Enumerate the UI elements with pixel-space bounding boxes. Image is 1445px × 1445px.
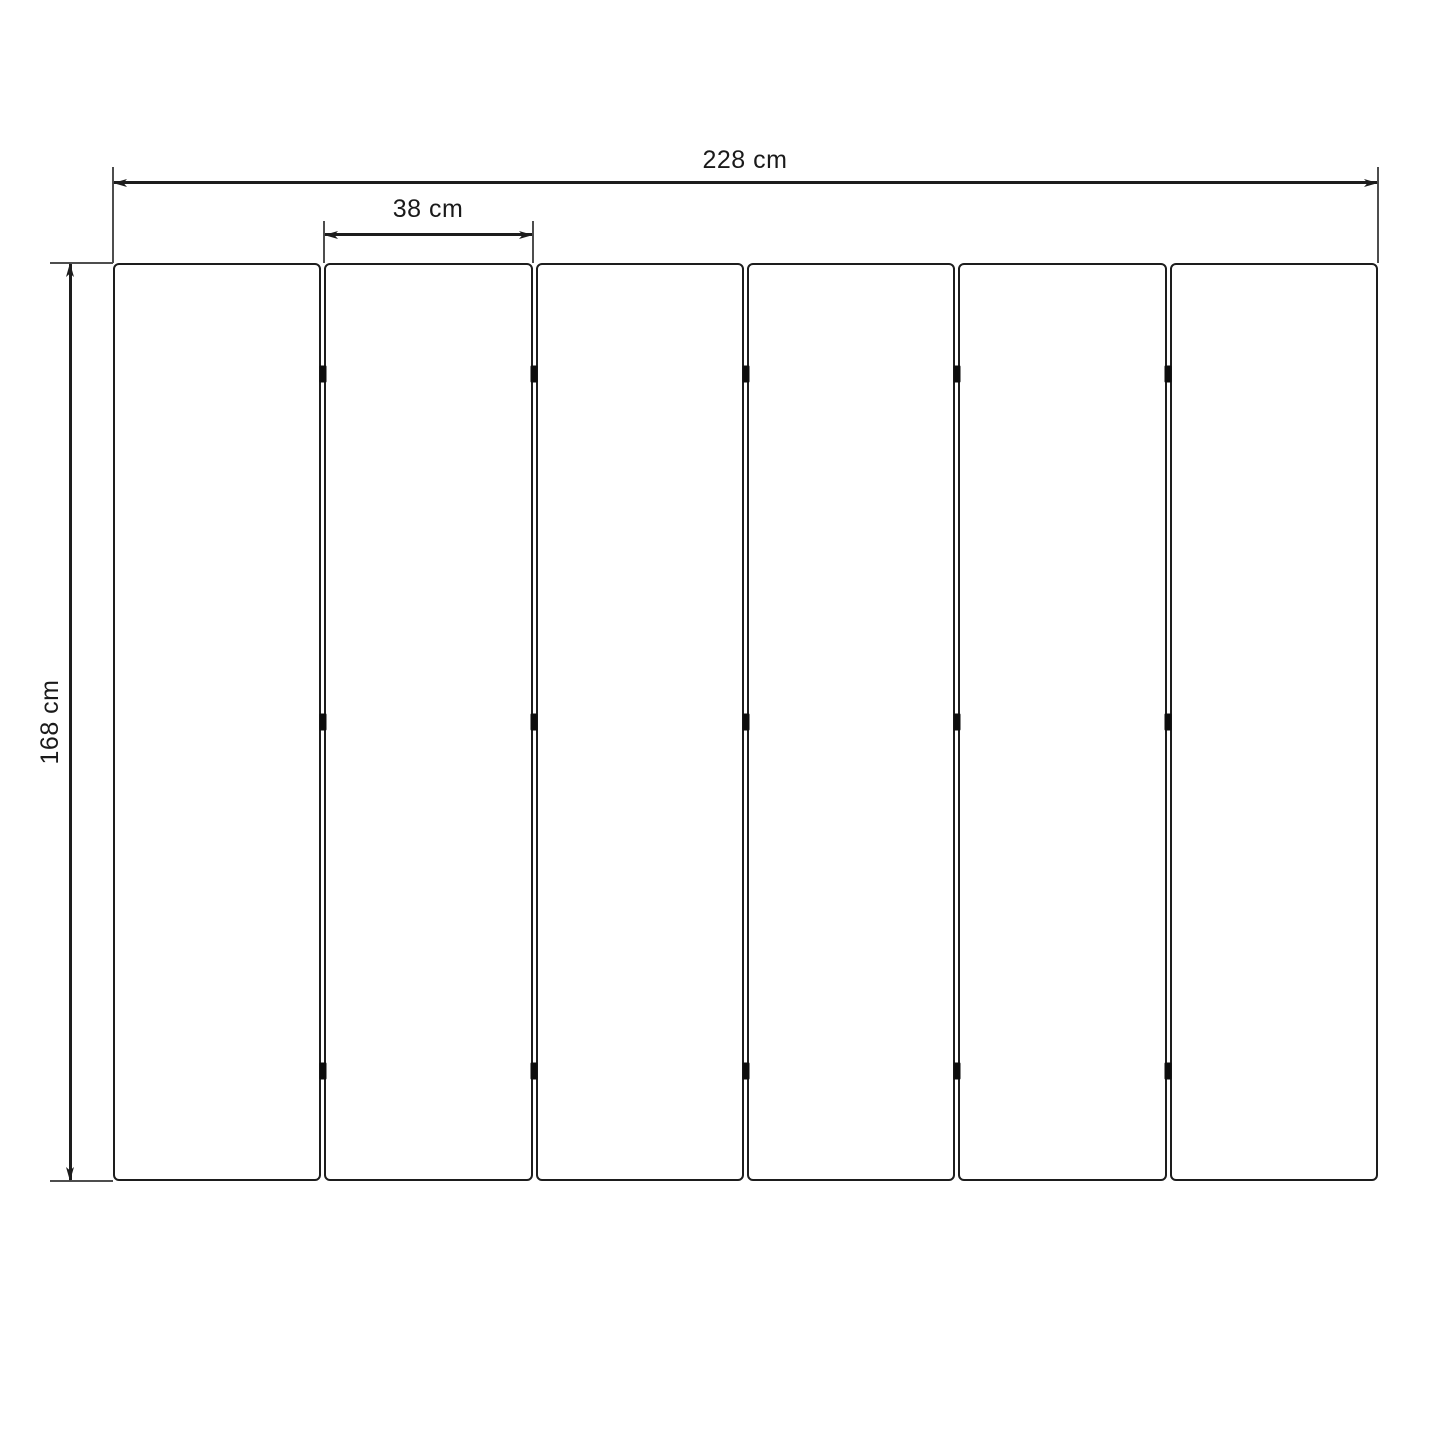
dimension-line-height bbox=[69, 263, 72, 1181]
hinge bbox=[742, 1063, 749, 1080]
hinge bbox=[953, 714, 960, 731]
hinge bbox=[531, 366, 538, 383]
arrowhead-left-icon bbox=[113, 178, 127, 188]
arrowhead-up-icon bbox=[65, 263, 75, 277]
arrowhead-down-icon bbox=[65, 1167, 75, 1181]
hinge bbox=[742, 714, 749, 731]
panel bbox=[324, 263, 532, 1181]
extension-line bbox=[532, 221, 533, 263]
hinge bbox=[1165, 714, 1172, 731]
hinge bbox=[531, 714, 538, 731]
hinge bbox=[319, 1063, 326, 1080]
hinge bbox=[319, 714, 326, 731]
dimension-label-total-width: 228 cm bbox=[595, 146, 895, 174]
hinge bbox=[953, 1063, 960, 1080]
panel bbox=[958, 263, 1166, 1181]
hinge bbox=[742, 366, 749, 383]
arrowhead-right-icon bbox=[519, 230, 533, 240]
dimension-label-panel-width: 38 cm bbox=[328, 195, 528, 223]
extension-line bbox=[323, 221, 324, 263]
hinge bbox=[531, 1063, 538, 1080]
panel bbox=[747, 263, 955, 1181]
extension-line bbox=[50, 262, 113, 263]
hinge bbox=[319, 366, 326, 383]
dimension-line-panel-width bbox=[324, 233, 533, 236]
panel bbox=[1170, 263, 1378, 1181]
panel bbox=[113, 263, 321, 1181]
extension-line bbox=[50, 1180, 113, 1181]
dimension-label-height: 168 cm bbox=[36, 680, 64, 765]
hinge bbox=[953, 366, 960, 383]
dimension-diagram: 228 cm 38 cm 168 cm bbox=[0, 0, 1445, 1445]
panel bbox=[536, 263, 744, 1181]
arrowhead-left-icon bbox=[324, 230, 338, 240]
hinge bbox=[1165, 366, 1172, 383]
dimension-line-total-width bbox=[113, 181, 1378, 184]
arrowhead-right-icon bbox=[1364, 178, 1378, 188]
hinge bbox=[1165, 1063, 1172, 1080]
